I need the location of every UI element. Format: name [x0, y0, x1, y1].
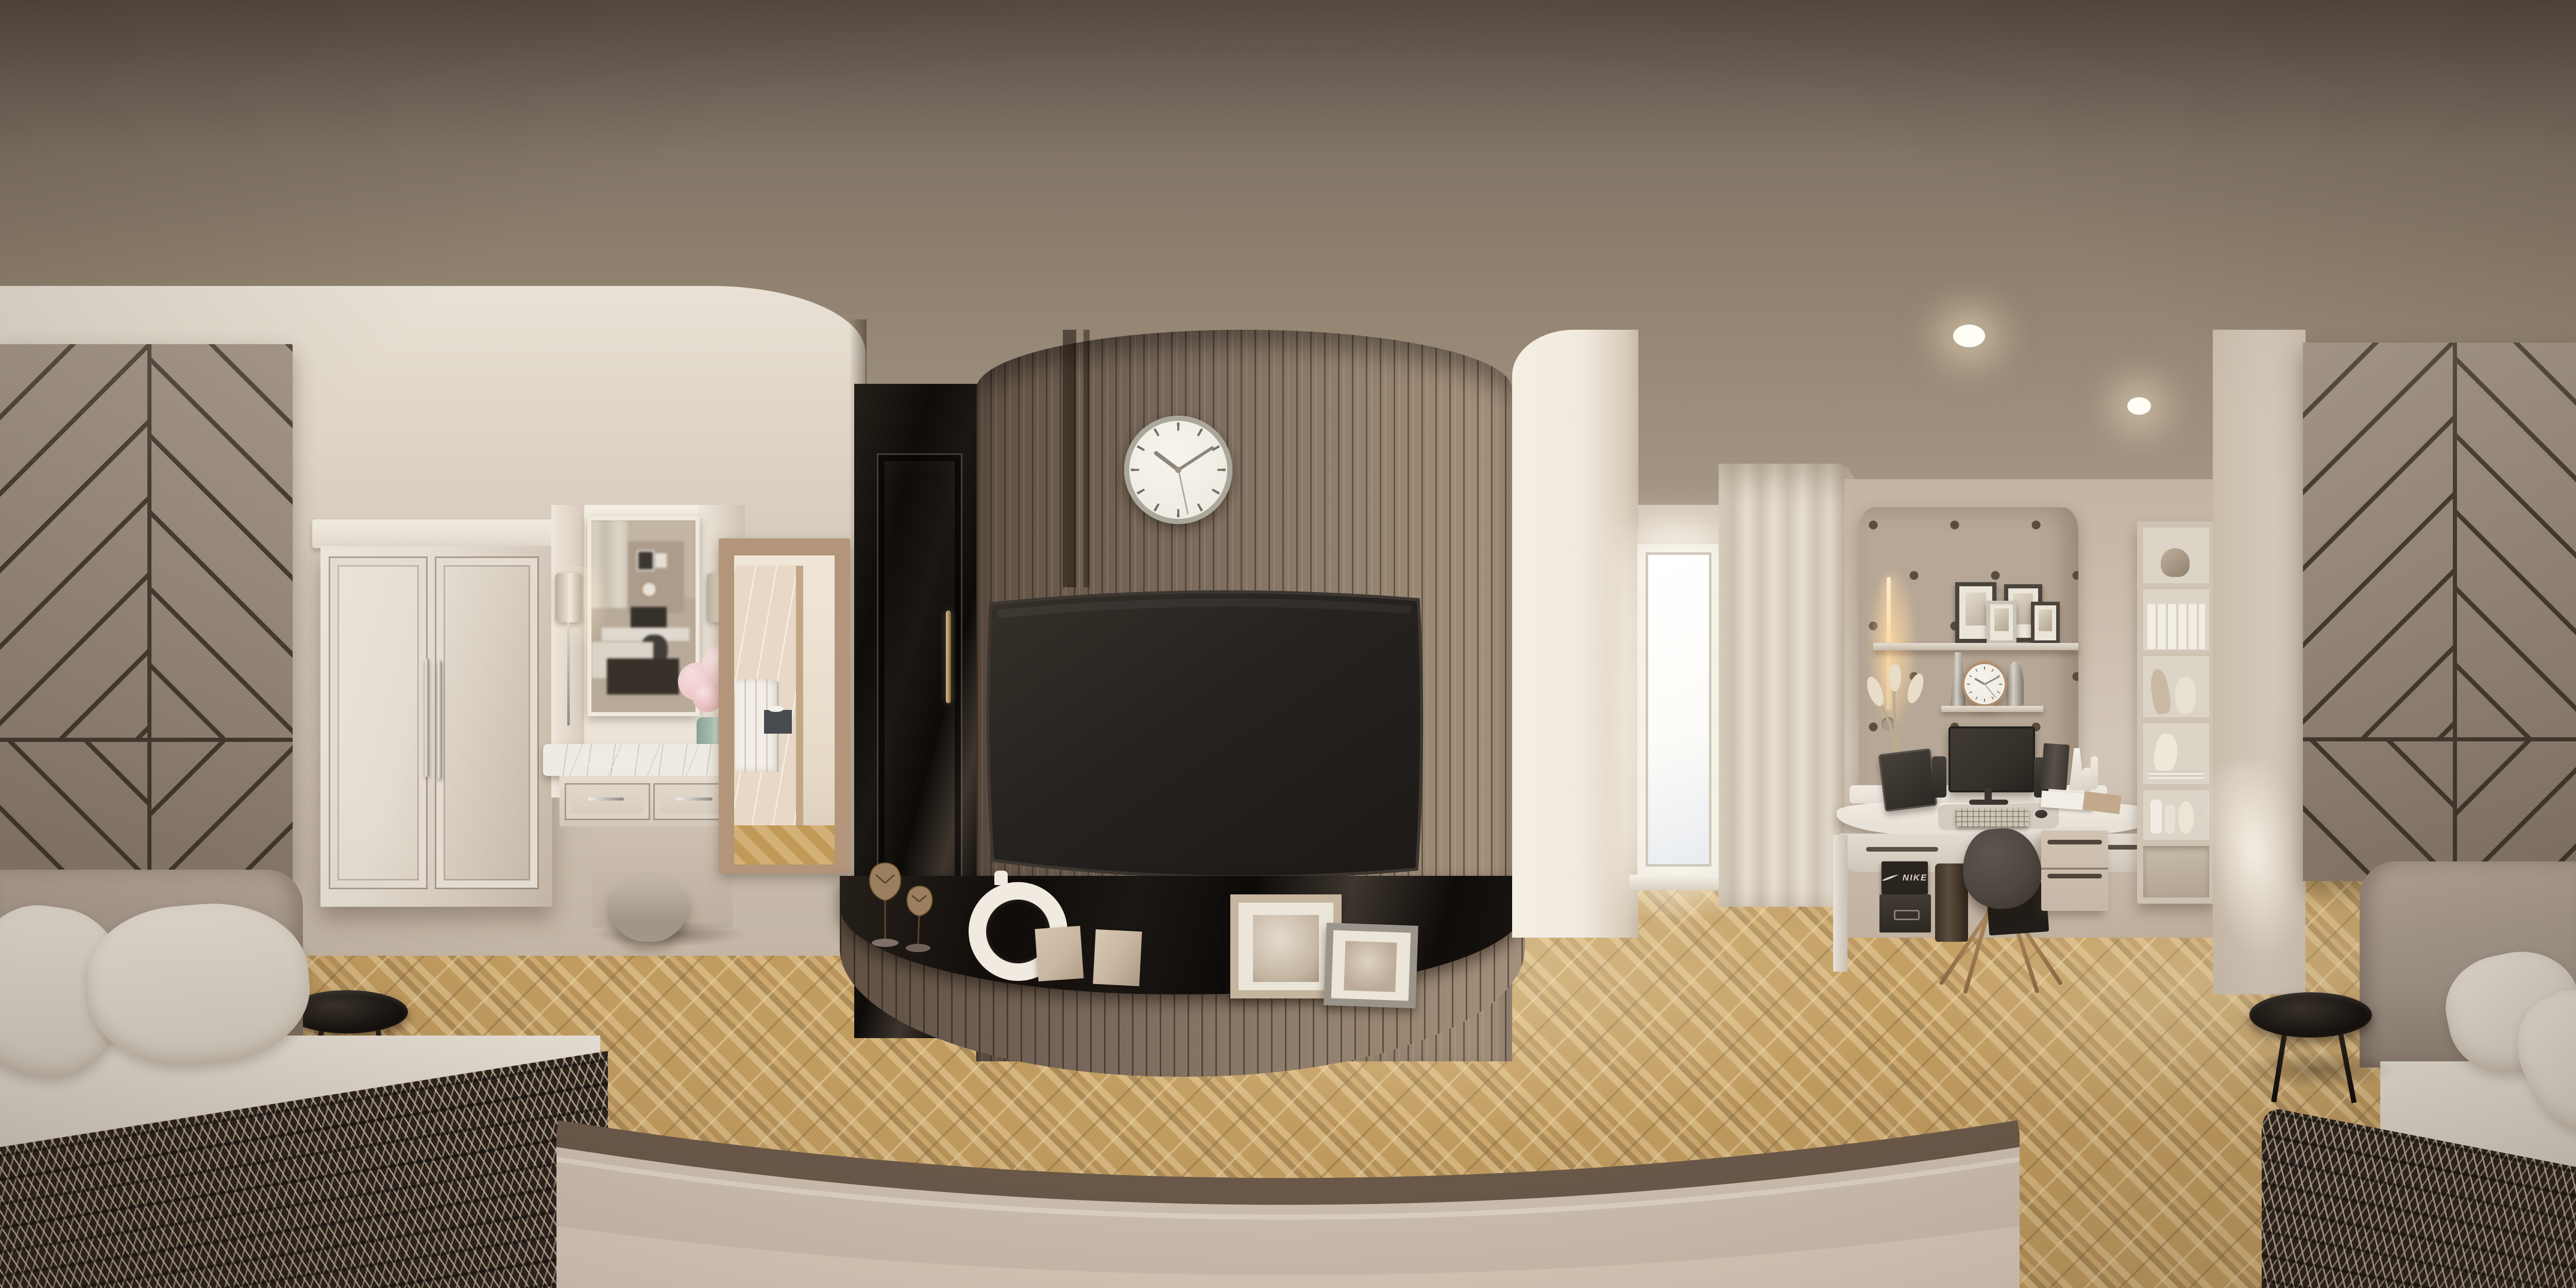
bookcase-shelf-3 — [2143, 656, 2209, 717]
drawer-unit[interactable] — [2041, 831, 2108, 911]
clock-hub — [1175, 467, 1181, 473]
white-corner-column — [1512, 330, 1638, 938]
sculpture-vase — [2148, 668, 2172, 715]
white-books-row — [2147, 604, 2205, 649]
sconce-stem-left — [567, 622, 570, 725]
wardrobe-handle-right[interactable] — [438, 660, 442, 779]
bed-right-throw-clip — [2262, 1092, 2576, 1288]
desk-drawer-slot[interactable] — [1866, 847, 1938, 852]
drawer-pull-slot[interactable] — [2047, 840, 2102, 844]
wardrobe-crown-molding — [312, 519, 561, 548]
mirror-reflected-monitor — [631, 607, 667, 630]
ledge-frame-4 — [2031, 602, 2060, 644]
white-bottle — [2150, 800, 2162, 834]
desk-side-panel — [1833, 835, 1848, 972]
pearl-necklace — [582, 751, 642, 768]
dried-plant — [1855, 665, 1937, 762]
bookcase-shelf-1 — [2143, 528, 2209, 583]
white-bottle — [2165, 805, 2175, 834]
mirror-reflected-drapes — [591, 520, 628, 608]
monstera-leaf-ornaments — [861, 839, 939, 957]
drawer-handle[interactable] — [588, 798, 624, 801]
vanity-drawers[interactable] — [560, 776, 741, 826]
table-shadow — [2241, 1051, 2396, 1089]
side-table-right[interactable] — [2249, 992, 2372, 1038]
mirror-reflected-clock — [641, 581, 657, 598]
window-pane — [1646, 552, 1711, 867]
abstract-print — [1253, 915, 1319, 982]
media-console — [840, 876, 1525, 1082]
bed-left-throw-clip — [0, 1051, 608, 1288]
tv-screen[interactable] — [981, 578, 1430, 887]
picture-ledge-shelf — [1873, 643, 2078, 650]
mirror-reflected-throw — [607, 658, 679, 694]
mirror-reflected-frame — [655, 553, 667, 568]
drawer-pull-slot[interactable] — [2047, 874, 2102, 878]
panel-shading — [2303, 343, 2576, 881]
ceiling-spotlight — [1953, 325, 1985, 347]
office-clock — [1964, 664, 2005, 705]
drawer-divider — [2041, 868, 2108, 870]
wardrobe-door-left[interactable] — [329, 556, 428, 889]
keyboard[interactable] — [1956, 809, 2029, 827]
window-sill — [1629, 875, 1730, 890]
sconce-shade-left — [555, 573, 582, 622]
doorway-opening[interactable] — [734, 555, 835, 865]
picture-frame-small — [1324, 923, 1418, 1008]
wood-dark-stripe — [1063, 330, 1076, 587]
spray-bottle — [2091, 756, 2098, 789]
sculpture-vase — [2175, 677, 2196, 714]
white-jar — [2178, 802, 2194, 834]
curvy-sculpture — [2151, 732, 2181, 775]
metal-storage-box — [1879, 894, 1931, 933]
wardrobe-handle-left[interactable] — [425, 658, 429, 777]
wardrobe-door-right[interactable] — [435, 556, 539, 889]
drawer-handle[interactable] — [676, 798, 713, 801]
chevron-panel-wall-right — [2303, 343, 2576, 881]
clock-shelf — [1941, 706, 2043, 712]
box-handle-slot — [1894, 910, 1920, 920]
stacked-papers — [2148, 771, 2204, 779]
abstract-print — [1994, 608, 2009, 631]
window[interactable] — [1637, 544, 1721, 878]
wall-clock — [1124, 416, 1232, 524]
nike-shoebox: NIKE — [1882, 861, 1928, 894]
monitor-base — [1969, 800, 2008, 805]
tablet-on-stand[interactable] — [1878, 748, 1938, 812]
monitor[interactable] — [1948, 726, 2035, 792]
chevron-panel-wall-left — [0, 344, 293, 881]
books-stack — [2041, 743, 2070, 790]
ledge-frame-3 — [1987, 601, 2016, 644]
bathroom-vanity-counter — [764, 710, 792, 734]
mirror-reflected-pegboard — [628, 541, 684, 613]
wood-dark-stripe — [1083, 330, 1090, 587]
herringbone-throw-right — [2262, 1107, 2576, 1288]
ring-vase-neck — [994, 871, 1008, 885]
abstract-print — [2039, 609, 2052, 631]
bookcase-cabinet-door[interactable] — [2143, 846, 2209, 897]
abstract-print — [1965, 592, 1986, 625]
vanity-drawer-left[interactable] — [565, 783, 650, 820]
silver-finial-right — [2006, 662, 2024, 707]
panel-shading — [0, 344, 293, 881]
metallic-pot — [2161, 548, 2190, 577]
nike-swoosh-icon — [1882, 874, 1900, 882]
bookcase-shelf-5 — [2143, 790, 2209, 840]
mouse[interactable] — [2035, 810, 2047, 818]
bathroom-sink — [768, 706, 784, 712]
herringbone-throw-left — [0, 1051, 608, 1288]
bookcase-shelf-2 — [2143, 589, 2209, 650]
nike-brand-label: NIKE — [1903, 873, 1928, 883]
speaker-left — [1932, 756, 1946, 798]
wardrobe[interactable] — [320, 546, 552, 907]
relief-art-tile — [1093, 929, 1142, 987]
hall-floor — [734, 825, 835, 865]
relief-art-tile — [1035, 926, 1084, 981]
ceiling-spotlight — [2127, 397, 2151, 415]
abstract-print — [1344, 941, 1397, 992]
bookcase[interactable] — [2137, 521, 2215, 904]
bookcase-shelf-4 — [2143, 723, 2209, 784]
bed-foot-foreground — [556, 1097, 2020, 1288]
mirror-reflected-frame — [637, 550, 654, 571]
panorama-viewport[interactable]: NIKE — [0, 0, 2576, 1288]
cabinet-brass-handle[interactable] — [946, 611, 951, 703]
